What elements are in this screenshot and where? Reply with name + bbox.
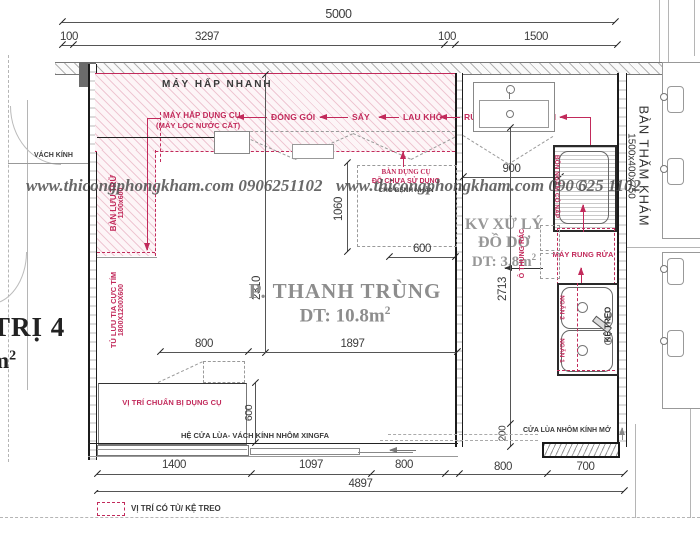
label-dong-goi: ĐÓNG GÓI — [271, 112, 315, 122]
dim-200: 200 — [497, 425, 508, 441]
dim-line-top-total — [62, 22, 615, 23]
dim-800b: 800 — [459, 461, 547, 473]
dim-800-mid: 800 — [160, 338, 248, 350]
knob-icon — [660, 337, 668, 345]
context-line — [635, 424, 636, 518]
sliding-door-rail — [97, 449, 247, 450]
dim-600v-wrap: 600 — [242, 398, 256, 428]
label-tu-luu-tia: TỦ LƯU TIA CỰC TÍM — [109, 271, 118, 347]
label-ngan-2-wrap: NGĂN 2 — [556, 289, 567, 326]
cabinet-door-swing — [158, 361, 203, 383]
bench-seat — [667, 158, 684, 185]
dim-line-600 — [389, 257, 455, 258]
flow-arrow-up — [583, 205, 584, 232]
label-he-cua-lua: HỆ CỬA LÙA- VÁCH KÍNH NHÔM XINGFA — [160, 431, 350, 440]
floor-plan-sheet: 5000 100 3297 100 1500 MÁY HẤP NHANH BÀN… — [0, 0, 700, 534]
door-guide-dashed — [380, 440, 538, 441]
label-ngan-1-wrap: NGĂN 1 — [556, 332, 567, 369]
label-ngan-1: NGĂN 1 — [558, 338, 565, 363]
adjacent-room-name: TRỊ 4 — [0, 312, 65, 343]
bottom-wall-line — [88, 456, 458, 457]
label-ke-treo: KỆ TREO — [604, 306, 613, 342]
door-slide-arrow — [390, 450, 416, 451]
label-ban-tham-kham-wrap: BÀN THĂM KHÁM 1500x400x750 — [620, 58, 658, 273]
label-ngan-2: NGĂN 2 — [558, 295, 565, 320]
knob-icon — [660, 265, 668, 273]
trash-bin — [540, 225, 560, 251]
label-o-thung-rac: Ô THÙNG RÁC — [520, 228, 527, 277]
dirty-zone-title-2: ĐỒ DƠ — [455, 234, 553, 252]
cabinet-dashed-line — [235, 131, 455, 132]
label-tu-luu-tia-size: 1800X1200X600 — [118, 271, 125, 347]
trash-bin — [540, 253, 560, 279]
label-vach-kinh: VÁCH KÍNH — [34, 152, 73, 159]
dim-600v: 600 — [243, 405, 255, 421]
label-tu-luu-tia-wrap: TỦ LƯU TIA CỰC TÍM 1800X1200X600 — [104, 262, 130, 357]
drain-icon — [577, 345, 588, 356]
label-may-hap-nhanh: MÁY HẤP NHANH — [162, 79, 273, 90]
dim-line-mid — [160, 352, 457, 353]
dim-900: 900 — [463, 163, 560, 175]
door-swing-arc — [0, 252, 27, 305]
dim-line-top-row — [62, 45, 617, 46]
drain-icon — [577, 302, 588, 313]
context-line — [0, 517, 700, 518]
context-line — [668, 0, 669, 63]
label-may-loc-nuoc-cat: (MÁY LỌC NƯỚC CẤT) — [156, 121, 240, 130]
dim-100-right: 100 — [432, 31, 462, 43]
label-vi-tri-chuan-bi: VỊ TRÍ CHUẨN BỊ DỤNG CỤ — [106, 398, 238, 407]
flow-arrow-left — [379, 117, 399, 118]
equipment-box — [292, 144, 334, 159]
double-door-swing — [508, 136, 553, 165]
label-ban-tham-kham: BÀN THĂM KHÁM — [637, 105, 652, 226]
dirty-zone-title-1: KV XỬ LÝ — [455, 216, 553, 234]
sliding-door-leaf — [542, 442, 620, 458]
dim-2713-wrap: 2713 — [496, 260, 509, 318]
room-area: DT: 10.8m2 — [235, 305, 455, 327]
room-title: P. THANH TRÙNG — [235, 279, 455, 304]
dim-top-total: 5000 — [62, 7, 615, 21]
sliding-door-panel — [250, 448, 360, 455]
bench-seat — [667, 330, 684, 357]
dim-700: 700 — [547, 461, 624, 473]
dim-100-left: 100 — [54, 31, 84, 43]
flow-elbow — [147, 118, 161, 119]
legend-swatch — [97, 502, 125, 516]
label-o-thung-rac-wrap: Ô THÙNG RÁC — [517, 224, 529, 282]
sink-edge-dashed — [557, 370, 615, 371]
knob-icon — [660, 165, 668, 173]
sink-divider-dashed — [577, 283, 578, 372]
dim-600: 600 — [389, 243, 455, 255]
cabinet-dashed — [203, 361, 245, 383]
faucet-icon — [506, 85, 515, 94]
dim-200-wrap: 200 — [496, 420, 509, 446]
dim-800a: 800 — [360, 459, 448, 471]
dim-1060: 1060 — [333, 197, 345, 221]
knob-icon — [660, 93, 668, 101]
drain-icon — [506, 110, 514, 118]
storage-strip-edge — [97, 257, 157, 258]
legend-text: VỊ TRÍ CÓ TỦ/ KỆ TREO — [131, 504, 221, 513]
label-say: SẤY — [352, 112, 370, 122]
adjacent-room-area: m2 — [0, 348, 16, 374]
dim-1500: 1500 — [506, 31, 566, 43]
dim-tick — [344, 248, 351, 255]
label-ban-tham-kham-size: 1500x400x750 — [626, 105, 637, 226]
context-line — [694, 0, 695, 56]
dim-2713: 2713 — [497, 277, 509, 301]
watermark-left: www.thicongphongkham.com 0906251102 — [26, 176, 322, 196]
sliding-door-panel — [97, 445, 249, 456]
bench-seat — [667, 258, 684, 285]
label-cua-lua-nhom: CỬA LÙA NHÔM KÍNH MỞ — [523, 427, 611, 434]
flow-elbow — [590, 117, 591, 147]
bottom-wall-line — [88, 443, 458, 444]
bench-seat — [667, 86, 684, 113]
label-ban-luu-tru-wrap: BÀN LƯU TRỮ 1100x600 — [104, 152, 130, 254]
watermark-right: www.thicongphongkham.com 090 625 1102 — [336, 176, 641, 196]
dim-1097: 1097 — [251, 459, 371, 471]
context-line — [690, 395, 691, 518]
door-arrow-up — [622, 428, 623, 440]
dim-3297: 3297 — [177, 31, 237, 43]
vach-kinh-line — [8, 163, 88, 164]
flow-arrow-left — [320, 117, 348, 118]
dim-tick — [614, 41, 621, 48]
label-lau-kho: LAU KHÔ — [403, 112, 442, 122]
dim-1400: 1400 — [97, 459, 251, 471]
dim-bottom-total: 4897 — [97, 478, 624, 490]
label-ke-treo-wrap: KỆ TREO — [601, 299, 615, 349]
double-door-swing — [463, 135, 508, 164]
context-line — [659, 0, 660, 63]
faucet-stem — [509, 92, 510, 99]
equipment-box — [214, 131, 250, 154]
sliding-door-rail — [358, 452, 413, 453]
dim-1897: 1897 — [248, 338, 457, 350]
dim-line-bottom-total — [97, 491, 624, 492]
flow-arrow-left — [237, 117, 267, 118]
flow-arrow-left — [440, 117, 460, 118]
flow-arrow-left — [560, 117, 591, 118]
label-may-hap-dung-cu: MÁY HẤP DỤNG CỤ — [163, 111, 241, 120]
door-guide-dashed — [388, 434, 538, 435]
flow-arrow-up — [403, 152, 404, 167]
